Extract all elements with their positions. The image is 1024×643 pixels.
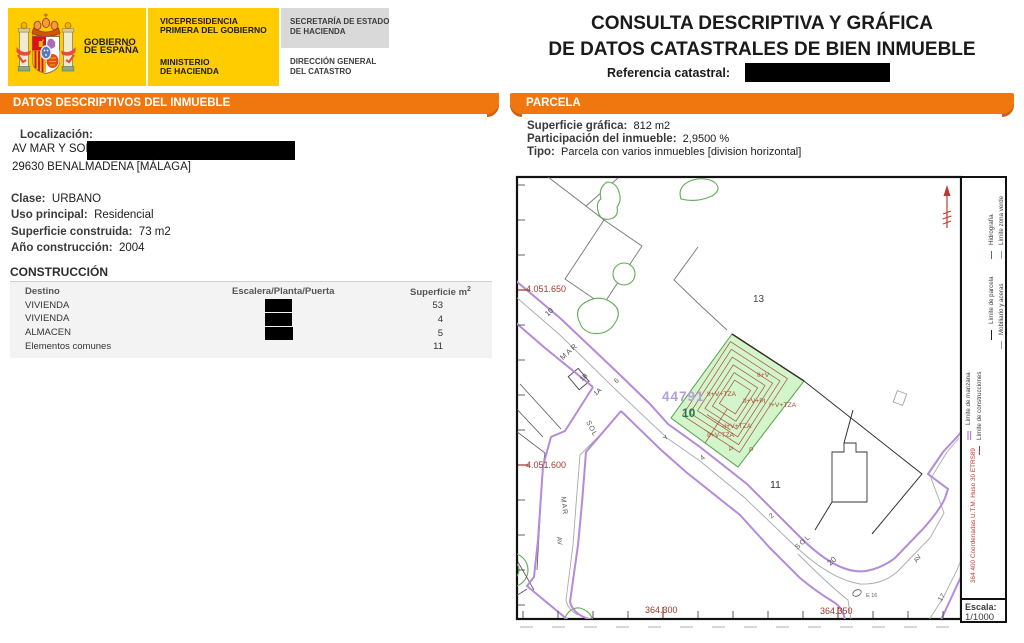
svg-text:P: P [749, 447, 754, 454]
svg-text:Límite de manzana: Límite de manzana [965, 372, 972, 425]
svg-text:-I+V+TZA: -I+V+TZA [722, 423, 752, 430]
svg-text:Límite zona verde: Límite zona verde [998, 195, 1005, 245]
svg-text:364.300: 364.300 [645, 605, 678, 615]
svg-text:Límite de parcela: Límite de parcela [988, 276, 995, 324]
svg-text:11: 11 [770, 479, 781, 491]
svg-text:364.350: 364.350 [820, 606, 853, 616]
svg-text:364 400 Coordenadas U.T.M. Hus: 364 400 Coordenadas U.T.M. Huso 30 ETRS8… [970, 448, 977, 583]
svg-text:II+V+TZA: II+V+TZA [707, 391, 737, 398]
svg-text:Hidrografía: Hidrografía [988, 214, 995, 245]
svg-text:1/1000: 1/1000 [965, 612, 994, 623]
svg-text:Límite de construcciones: Límite de construcciones [976, 372, 983, 440]
svg-text:Escala:: Escala: [965, 602, 997, 612]
svg-text:AV: AV [555, 536, 563, 546]
svg-text:4.051.600: 4.051.600 [526, 460, 566, 470]
svg-text:P: P [729, 446, 734, 453]
svg-text:4.051.650: 4.051.650 [526, 284, 566, 294]
svg-text:Mobiliario y aceras: Mobiliario y aceras [998, 283, 1005, 335]
svg-text:I+V+TZA: I+V+TZA [769, 402, 797, 409]
svg-text:II+V+PI: II+V+PI [743, 398, 766, 405]
svg-text:II+V-TZA: II+V-TZA [707, 432, 734, 439]
svg-text:44791: 44791 [662, 389, 705, 404]
svg-text:E 16: E 16 [866, 593, 877, 599]
svg-text:13: 13 [753, 294, 765, 305]
svg-text:II+V: II+V [757, 372, 770, 379]
svg-text:10: 10 [682, 406, 696, 420]
